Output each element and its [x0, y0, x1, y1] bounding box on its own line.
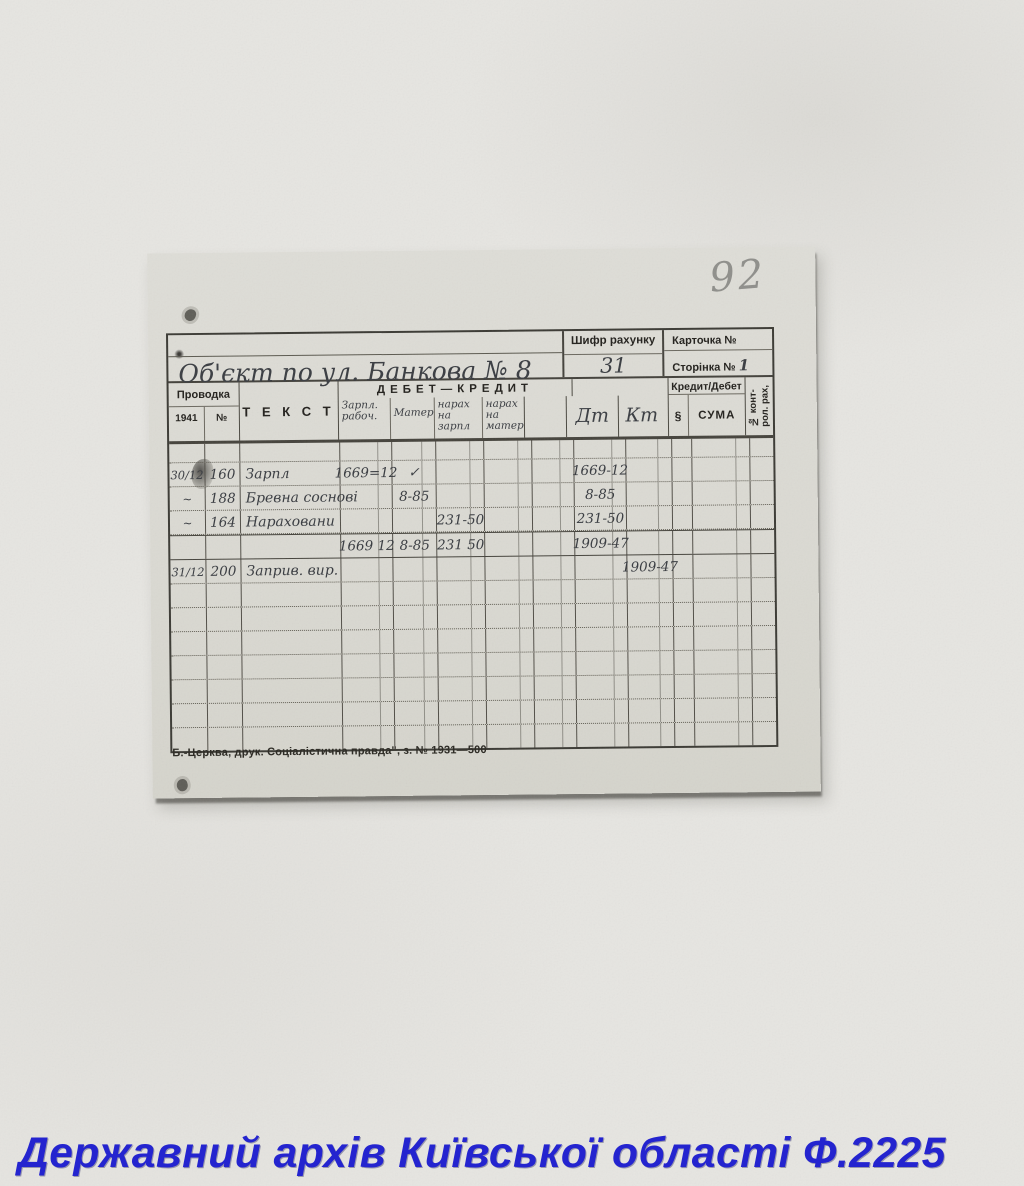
ink-mark: [174, 349, 184, 359]
ledger-cell: [171, 584, 207, 607]
ledger-cell: [627, 531, 673, 554]
ledger-cell: [674, 603, 694, 626]
ledger-cell: [241, 534, 341, 558]
ledger-cell: [208, 680, 243, 703]
ledger-cell: [693, 481, 751, 505]
ledger-cell: [393, 557, 437, 580]
ledger-cell: [341, 509, 393, 533]
ledger-cell: [242, 582, 342, 606]
ledger-cell: 1909-47: [575, 532, 627, 556]
ledger-cell: [393, 508, 437, 531]
ledger-table: Об'єкт по ул. Банкова № 8 Шифр рахунку 3…: [166, 327, 778, 753]
ledger-cell: [438, 581, 486, 605]
ledger-cell: [673, 506, 693, 529]
ledger-cell: [629, 723, 675, 746]
ledger-cell: 188: [206, 487, 241, 510]
ledger-cell: [487, 700, 535, 724]
ledger-cell: [394, 581, 438, 604]
ledger-cell: 1669-12: [574, 459, 626, 483]
ledger-cell: [171, 656, 207, 679]
ledger-cell: [628, 627, 674, 650]
ledger-cell: [627, 506, 673, 529]
ledger-cell: [171, 608, 207, 631]
ledger-cell: [395, 725, 439, 748]
ledger-cell: [694, 650, 752, 674]
ledger-cell: [172, 728, 208, 751]
ledger-cell: [242, 654, 342, 678]
ledger-cell: [752, 650, 778, 673]
page-number-label: Сторінка №: [672, 361, 735, 374]
ledger-cell: 231 50: [437, 533, 485, 557]
ledger-cell: [172, 680, 208, 703]
ledger-cell: [439, 677, 487, 701]
ledger-cell: [576, 579, 628, 603]
ledger-cell: [487, 724, 535, 748]
ledger-cell: Нараховани: [241, 509, 341, 533]
ledger-cell: [207, 608, 242, 631]
ledger-cell: 200: [206, 560, 241, 583]
ledger-cell: [533, 532, 575, 555]
ledger-cell: ~: [170, 487, 206, 510]
ledger-cell: 1669 12: [341, 534, 393, 558]
ledger-cell: 1669=12: [340, 461, 392, 485]
ledger-cell: [627, 482, 673, 505]
ledger-cell: [436, 460, 484, 484]
ledger-cell: [693, 554, 751, 578]
ledger-cell: [395, 701, 439, 724]
ledger-cell: [343, 702, 395, 726]
ledger-cell: [437, 557, 485, 581]
ledger-cell: [750, 457, 776, 480]
ledger-cell: [486, 628, 534, 652]
debet-kredit-section: ДЕБЕТ—КРЕДИТ Зарпл. рабоч. Матер. нарах …: [338, 378, 668, 439]
ledger-cell: 30/12: [169, 463, 205, 486]
empty-header-cell: [572, 378, 667, 396]
ledger-cell: [695, 698, 753, 722]
ledger-cell: [485, 483, 533, 507]
card-number-label: Карточка №: [664, 329, 772, 351]
ledger-cell: Заприв. вир.: [241, 558, 341, 582]
ledger-cell: [243, 702, 343, 726]
ledger-cell: [439, 701, 487, 725]
ledger-cell: [340, 442, 392, 461]
ledger-cell: 8-85: [393, 484, 437, 507]
object-title-handwritten: Об'єкт по ул. Банкова № 8: [178, 355, 532, 388]
year-label: 1941: [169, 407, 205, 441]
ledger-cell: [675, 699, 695, 722]
control-account-label: № конт- рол. рах,: [747, 385, 771, 427]
ledger-cell: [577, 723, 629, 747]
ledger-cell: [577, 699, 629, 723]
ledger-cell: [208, 704, 243, 727]
ledger-cell: [672, 439, 692, 457]
handwritten-column-label: нарах на зарпл: [435, 397, 483, 439]
ledger-cell: [751, 530, 777, 553]
row-number-label: №: [205, 407, 239, 441]
ledger-cell: [485, 532, 533, 556]
ledger-cell: [751, 505, 777, 528]
object-title-cell: Об'єкт по ул. Банкова № 8: [168, 331, 564, 381]
ledger-cell: [674, 651, 694, 674]
ledger-cell: [172, 704, 208, 727]
ledger-cell: [487, 676, 535, 700]
ledger-cell: [207, 632, 242, 655]
ledger-cell: [673, 555, 693, 578]
ledger-cell: [532, 459, 574, 482]
ledger-cell: 31/12: [170, 560, 206, 583]
ledger-cell: [628, 579, 674, 602]
ledger-cell: [629, 675, 675, 698]
handwritten-column-label: [525, 396, 567, 437]
punch-hole-mark: [175, 778, 189, 793]
ledger-cell: [484, 459, 532, 483]
ledger-cell: [694, 578, 752, 602]
account-code-label: Шифр рахунку: [564, 330, 662, 355]
ledger-cell: 8-85: [393, 533, 437, 556]
ledger-cell: [692, 457, 750, 481]
ledger-cell: [205, 444, 240, 462]
account-code-value: 31: [564, 354, 662, 377]
punch-hole-mark: [183, 308, 197, 323]
ledger-cell: [206, 536, 241, 559]
ledger-cell: [208, 728, 243, 751]
ledger-cell: Бревна соснові: [241, 485, 341, 509]
ledger-cell: [170, 536, 206, 559]
card-number-box: Карточка № Сторінка № 1: [664, 329, 772, 376]
ledger-cell: [242, 630, 342, 654]
ledger-cell: Зарпл: [240, 462, 340, 486]
ledger-cell: [751, 481, 777, 504]
ledger-cell: [343, 726, 395, 750]
ledger-cell: [394, 629, 438, 652]
ledger-cell: 231-50: [575, 507, 627, 531]
ledger-cell: [628, 651, 674, 674]
ledger-cell: [486, 580, 534, 604]
ledger-cell: [207, 584, 242, 607]
ledger-cell: [437, 484, 485, 508]
ledger-cell: [243, 726, 343, 750]
ledger-cell: [753, 722, 779, 745]
ledger-cell: [675, 675, 695, 698]
ledger-cell: [342, 606, 394, 630]
ledger-cell: [628, 603, 674, 626]
ledger-cell: [753, 698, 779, 721]
archive-card: 92 Об'єкт по ул. Банкова № 8 Шифр рахунк…: [147, 247, 821, 799]
ledger-cell: [577, 675, 629, 699]
ledger-cell: [753, 674, 779, 697]
ledger-cell: [438, 629, 486, 653]
handwritten-column-label: нарах на матер.: [483, 397, 525, 438]
title-row: Об'єкт по ул. Банкова № 8 Шифр рахунку 3…: [168, 329, 772, 383]
ledger-cell: [342, 582, 394, 606]
handwritten-column-label: Зарпл. рабоч.: [339, 398, 391, 440]
ledger-cell: [695, 674, 753, 698]
page-number-value: 1: [739, 356, 750, 374]
ledger-cell: [629, 699, 675, 722]
page-number-box: Сторінка № 1: [664, 350, 772, 376]
ledger-cell: [392, 441, 436, 459]
ledger-cell: 1909-47: [627, 555, 673, 578]
ledger-cell: [341, 558, 393, 582]
ledger-cell: [534, 580, 576, 603]
ledger-cell: [342, 630, 394, 654]
ledger-cell: ~: [170, 511, 206, 534]
ledger-cell: [626, 458, 672, 481]
ledger-cell: [532, 440, 574, 458]
ledger-cell: [575, 556, 627, 580]
paragraph-label: §: [668, 395, 688, 436]
credit-debet-section: Кредит/Дебет § СУМА: [668, 377, 746, 436]
ledger-cell: [486, 604, 534, 628]
suma-label: СУМА: [688, 394, 745, 436]
ledger-cell: [243, 678, 343, 702]
ledger-cell: [341, 485, 393, 509]
ledger-cell: [576, 627, 628, 651]
ledger-cell: 8-85: [575, 483, 627, 507]
ledger-cell: [486, 652, 534, 676]
credit-debet-header: Кредит/Дебет: [668, 377, 745, 395]
ledger-cell: [693, 530, 751, 554]
account-code-box: Шифр рахунку 31: [564, 330, 664, 377]
ledger-cell: [533, 556, 575, 579]
ledger-cell: [207, 656, 242, 679]
ledger-cell: [535, 676, 577, 699]
ledger-cell: [750, 438, 776, 456]
ledger-cell: [695, 722, 753, 746]
credit-column-label: Кт: [619, 395, 665, 436]
provodka-header: Проводка 1941 №: [169, 383, 240, 442]
ledger-cell: [395, 677, 439, 700]
ledger-cell: [674, 579, 694, 602]
ledger-cell: [673, 482, 693, 505]
ledger-cell: [534, 604, 576, 627]
ledger-cell: [752, 626, 778, 649]
ledger-cell: [394, 653, 438, 676]
ledger-cell: [534, 628, 576, 651]
ledger-cell: [484, 440, 532, 459]
ledger-cell: [485, 507, 533, 531]
ledger-cell: [574, 440, 626, 459]
ledger-cell: [672, 458, 692, 481]
ledger-cell: [240, 443, 340, 462]
ledger-cell: ✓: [392, 460, 436, 483]
ledger-cell: [242, 606, 342, 630]
ledger-cell: [751, 554, 777, 577]
ledger-cell: [752, 578, 778, 601]
ledger-cell: [485, 556, 533, 580]
ledger-cell: [576, 651, 628, 675]
page-number-pencil: 92: [708, 251, 768, 301]
ledger-cell: [342, 654, 394, 678]
ledger-cell: [674, 627, 694, 650]
handwritten-column-label: Матер.: [391, 398, 435, 439]
ledger-cell: [673, 531, 693, 554]
photo-background: { "photo": { "pencil_number": "92", "cap…: [0, 0, 1024, 1186]
debit-column-label: Дт: [567, 396, 619, 438]
ledger-cell: [436, 441, 484, 460]
ledger-cell: [439, 725, 487, 749]
ledger-body: 30/12160Зарпл1669=12✓1669-12~188Бревна с…: [169, 438, 776, 751]
ledger-cell: 231-50: [437, 508, 485, 532]
ledger-cell: 164: [206, 511, 241, 534]
ledger-cell: [694, 626, 752, 650]
table-row: [172, 722, 776, 751]
ledger-cell: [438, 605, 486, 629]
ledger-cell: [394, 605, 438, 628]
text-column-header: Т Е К С Т: [239, 382, 339, 441]
ledger-cell: [438, 653, 486, 677]
ledger-cell: [694, 602, 752, 626]
ledger-cell: [576, 603, 628, 627]
ledger-cell: [626, 439, 672, 457]
ledger-cell: [692, 438, 750, 457]
ledger-cell: 160: [205, 463, 240, 486]
ledger-cell: [534, 652, 576, 675]
ledger-cell: [533, 483, 575, 506]
ledger-cell: [343, 678, 395, 702]
archive-caption: Державний архів Київської області Ф.2225: [18, 1129, 946, 1178]
ledger-cell: [535, 700, 577, 723]
ledger-cell: [169, 444, 205, 462]
ledger-cell: [171, 632, 207, 655]
ledger-cell: [693, 505, 751, 529]
ledger-cell: [752, 602, 778, 625]
ledger-cell: [675, 723, 695, 746]
ledger-cell: [535, 724, 577, 747]
control-account-header: № конт- рол. рах,: [746, 377, 773, 435]
ledger-cell: [533, 507, 575, 530]
